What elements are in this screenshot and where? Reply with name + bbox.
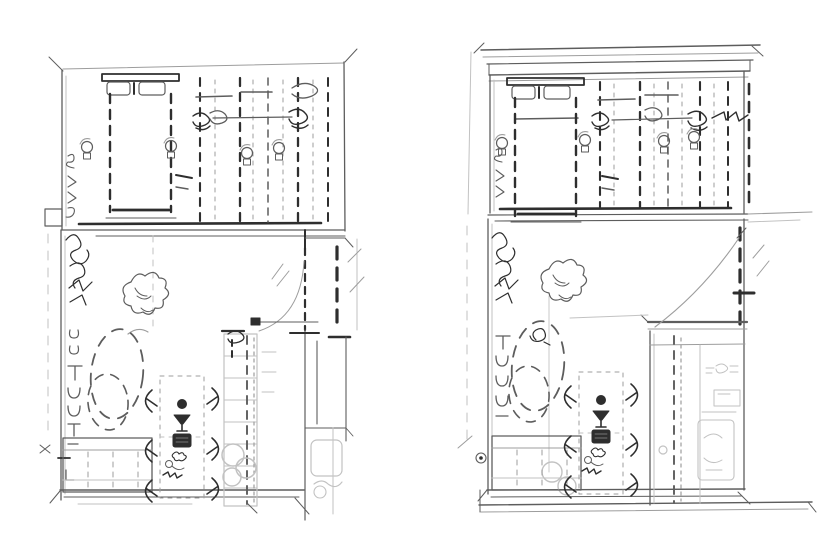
closet-handle	[687, 129, 700, 149]
corner-tick	[478, 490, 487, 501]
oval-rug	[507, 319, 569, 424]
divider-extension	[748, 220, 800, 222]
table-item-glass-stem	[177, 424, 187, 431]
dining-chair	[626, 474, 638, 496]
corner-tick	[346, 428, 353, 436]
sink-circle	[236, 458, 256, 478]
balcony-rail-inner	[483, 53, 758, 57]
kitchen-sink	[222, 444, 256, 486]
spiral-mark	[530, 329, 550, 345]
wall-glyphs	[494, 148, 504, 197]
table-item-curve	[591, 462, 603, 466]
cabinet-lower	[698, 420, 734, 480]
balcony-deck-line	[487, 60, 753, 64]
balcony-side	[468, 52, 471, 214]
knob-base	[691, 143, 698, 149]
bedside-knob	[578, 132, 591, 152]
kitchen-top-scribble	[228, 331, 244, 343]
hatch-mark	[757, 261, 769, 276]
potted-plant	[541, 259, 587, 301]
wall-top	[63, 63, 344, 69]
outside-x-mark	[40, 445, 50, 453]
bed-headboard	[507, 78, 584, 85]
sketch-page	[0, 0, 831, 555]
table-item-curve	[172, 466, 184, 470]
futon-scribble	[292, 83, 318, 98]
knob-base	[276, 154, 283, 160]
wall-glyphs	[66, 154, 76, 217]
wall-tick	[66, 470, 74, 480]
table-item-scribble-dark	[582, 468, 601, 474]
corner-tick	[752, 46, 763, 56]
dining-chair	[207, 388, 219, 410]
shelf-tick	[602, 176, 618, 179]
table-item-cup	[166, 461, 173, 468]
table-item-scribble-dark	[163, 472, 182, 478]
corner-tick	[49, 57, 63, 71]
knob-circle	[580, 135, 591, 146]
cabinet-lower-curves	[704, 434, 722, 470]
appliance-scribble	[706, 364, 738, 373]
wall-bottom-inner	[491, 496, 742, 497]
floor-line	[570, 315, 648, 318]
oval-rug	[86, 327, 148, 432]
table-item-tray	[592, 430, 610, 443]
corner-tick	[295, 498, 309, 514]
sink-circle	[222, 444, 244, 466]
cabinet-faint-rects	[702, 390, 740, 412]
hatch-mark	[458, 436, 472, 448]
corner-tick	[345, 49, 357, 62]
wall-hook-bars	[68, 366, 82, 444]
sofa-outline	[492, 436, 581, 490]
dining-chair	[626, 434, 638, 456]
bed-blanket-line	[515, 118, 578, 119]
balcony-rail	[481, 45, 760, 50]
hatch-mark	[277, 271, 289, 286]
sill-block	[251, 318, 260, 325]
corner-tick	[808, 502, 816, 512]
floor-plan-right-unit	[458, 43, 816, 512]
plant-vein	[553, 275, 571, 299]
dining-chair	[565, 386, 577, 408]
door-swing-arc	[655, 238, 739, 327]
plant-vein	[135, 288, 153, 312]
corner-scribble	[712, 112, 748, 121]
cabinet-faint	[262, 352, 276, 392]
knob-base	[661, 147, 668, 153]
hatch-mark	[348, 249, 361, 262]
balcony-bottom-line	[479, 502, 812, 505]
sink-circle	[223, 468, 241, 486]
bedside-knob	[80, 139, 93, 159]
dining-chair	[207, 438, 219, 460]
table-item-scribble	[591, 448, 605, 457]
wall-divider-dark	[500, 208, 731, 209]
bed-pillow	[139, 82, 165, 95]
dining-set	[146, 376, 219, 502]
plant-scribble	[541, 259, 587, 301]
wall-top	[489, 71, 750, 75]
closet-handle	[272, 140, 285, 160]
bed-pillow	[544, 86, 570, 99]
dining-set	[565, 372, 638, 498]
table-item-bowl	[597, 396, 606, 405]
corner-tick	[247, 503, 257, 513]
closet-handle	[240, 145, 253, 165]
sofa-outline	[63, 438, 152, 492]
knob-base	[582, 146, 589, 152]
wall-stub-box	[45, 209, 62, 226]
knob-circle	[274, 143, 285, 154]
vanity-circle	[314, 486, 326, 498]
bedside-knob	[495, 135, 508, 155]
dining-chair	[146, 440, 158, 462]
floor-cushion	[542, 462, 562, 482]
circled-dot-center	[480, 457, 483, 460]
coat-rack-scribble	[66, 235, 92, 305]
hanger-scribble	[688, 111, 707, 130]
table-item-cup	[585, 457, 592, 464]
shelf-tick	[176, 175, 192, 178]
corner-tick	[641, 315, 648, 322]
vanity-outline	[311, 440, 342, 476]
corner-tick	[474, 43, 484, 53]
shelf-line	[213, 117, 292, 118]
corner-tick	[345, 238, 353, 247]
divider-extension	[748, 212, 812, 214]
hatch-mark	[272, 264, 283, 279]
shelf-tick	[176, 187, 188, 189]
knob-circle	[242, 148, 253, 159]
floor-plan-left-unit	[40, 49, 364, 520]
coat-rack-scribble	[492, 233, 518, 303]
knob-base	[84, 153, 91, 159]
table-item-bowl	[178, 400, 187, 409]
knob-circle	[82, 142, 93, 153]
table-item-tray	[173, 434, 191, 447]
bed	[102, 74, 179, 218]
wall-right-upper	[344, 62, 345, 231]
shelf-tick	[602, 188, 614, 190]
corner-tick	[50, 491, 60, 503]
door-swing-arc	[259, 261, 304, 331]
table-item-glass	[593, 411, 609, 420]
wall-divider-lower	[495, 220, 748, 221]
shelf-line	[612, 118, 692, 120]
dining-chair	[626, 384, 638, 406]
rug-ellipse-inner	[507, 364, 552, 423]
rug-ellipse	[86, 327, 147, 422]
balcony-bottom-line-2	[481, 509, 808, 512]
knob-base	[244, 159, 251, 165]
table-item-glass	[174, 415, 190, 424]
floor-plan-canvas	[0, 0, 831, 555]
wall-hook-bars	[496, 336, 510, 416]
shelf-bar	[196, 96, 232, 97]
knob-circle	[689, 132, 700, 143]
potted-plant	[123, 272, 169, 314]
shelf-bar	[598, 99, 635, 100]
knob-circle	[497, 138, 508, 149]
table-item-scribble	[172, 452, 186, 461]
hanger-scribble	[193, 113, 210, 130]
hatch-mark	[753, 245, 764, 258]
sofa	[63, 438, 152, 492]
wall-divider-dark	[79, 223, 321, 224]
dining-chair	[565, 436, 577, 458]
sofa	[492, 436, 581, 490]
wall-hook	[70, 330, 79, 354]
sink-circle-small	[659, 446, 667, 454]
kitchen-counter-top-inner	[650, 344, 745, 345]
table-item-glass-stem	[596, 420, 606, 427]
bed-headboard	[102, 74, 179, 81]
rug-ellipse	[507, 319, 568, 414]
plant-scribble	[123, 272, 169, 314]
bed	[507, 78, 584, 222]
dining-chair	[146, 390, 158, 412]
dining-chair	[146, 480, 158, 502]
rug-ellipse-inner	[86, 372, 131, 431]
